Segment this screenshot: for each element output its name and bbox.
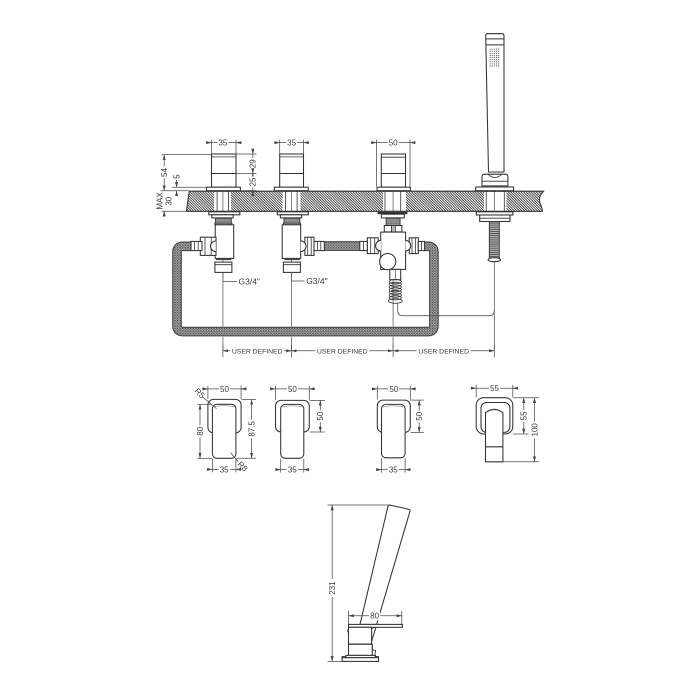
svg-text:80: 80 [370,612,379,621]
svg-text:50: 50 [288,385,297,394]
svg-text:USER DEFINED: USER DEFINED [418,348,469,355]
svg-text:55: 55 [520,411,529,420]
svg-text:35: 35 [389,466,398,475]
svg-text:80: 80 [196,426,205,435]
svg-text:231: 231 [328,581,337,595]
svg-text:35: 35 [220,465,229,474]
svg-text:29: 29 [249,159,258,168]
svg-text:50: 50 [316,411,325,420]
svg-text:35: 35 [218,139,227,148]
svg-text:35: 35 [288,466,297,475]
svg-text:50: 50 [389,385,398,394]
svg-text:G3/4": G3/4" [306,276,327,286]
svg-text:87.5: 87.5 [248,420,257,436]
svg-text:30: 30 [165,196,174,205]
svg-text:50: 50 [220,385,229,394]
svg-text:USER DEFINED: USER DEFINED [317,348,368,355]
svg-text:MAX: MAX [155,192,164,210]
svg-text:55: 55 [490,384,499,393]
svg-text:35: 35 [287,139,296,148]
svg-text:25: 25 [249,177,258,186]
svg-text:USER DEFINED: USER DEFINED [232,348,283,355]
svg-text:54: 54 [160,168,169,177]
svg-text:50: 50 [415,411,424,420]
svg-text:50: 50 [389,139,398,148]
svg-text:5: 5 [173,174,182,179]
svg-text:G3/4": G3/4" [239,276,260,286]
svg-text:100: 100 [530,423,539,437]
